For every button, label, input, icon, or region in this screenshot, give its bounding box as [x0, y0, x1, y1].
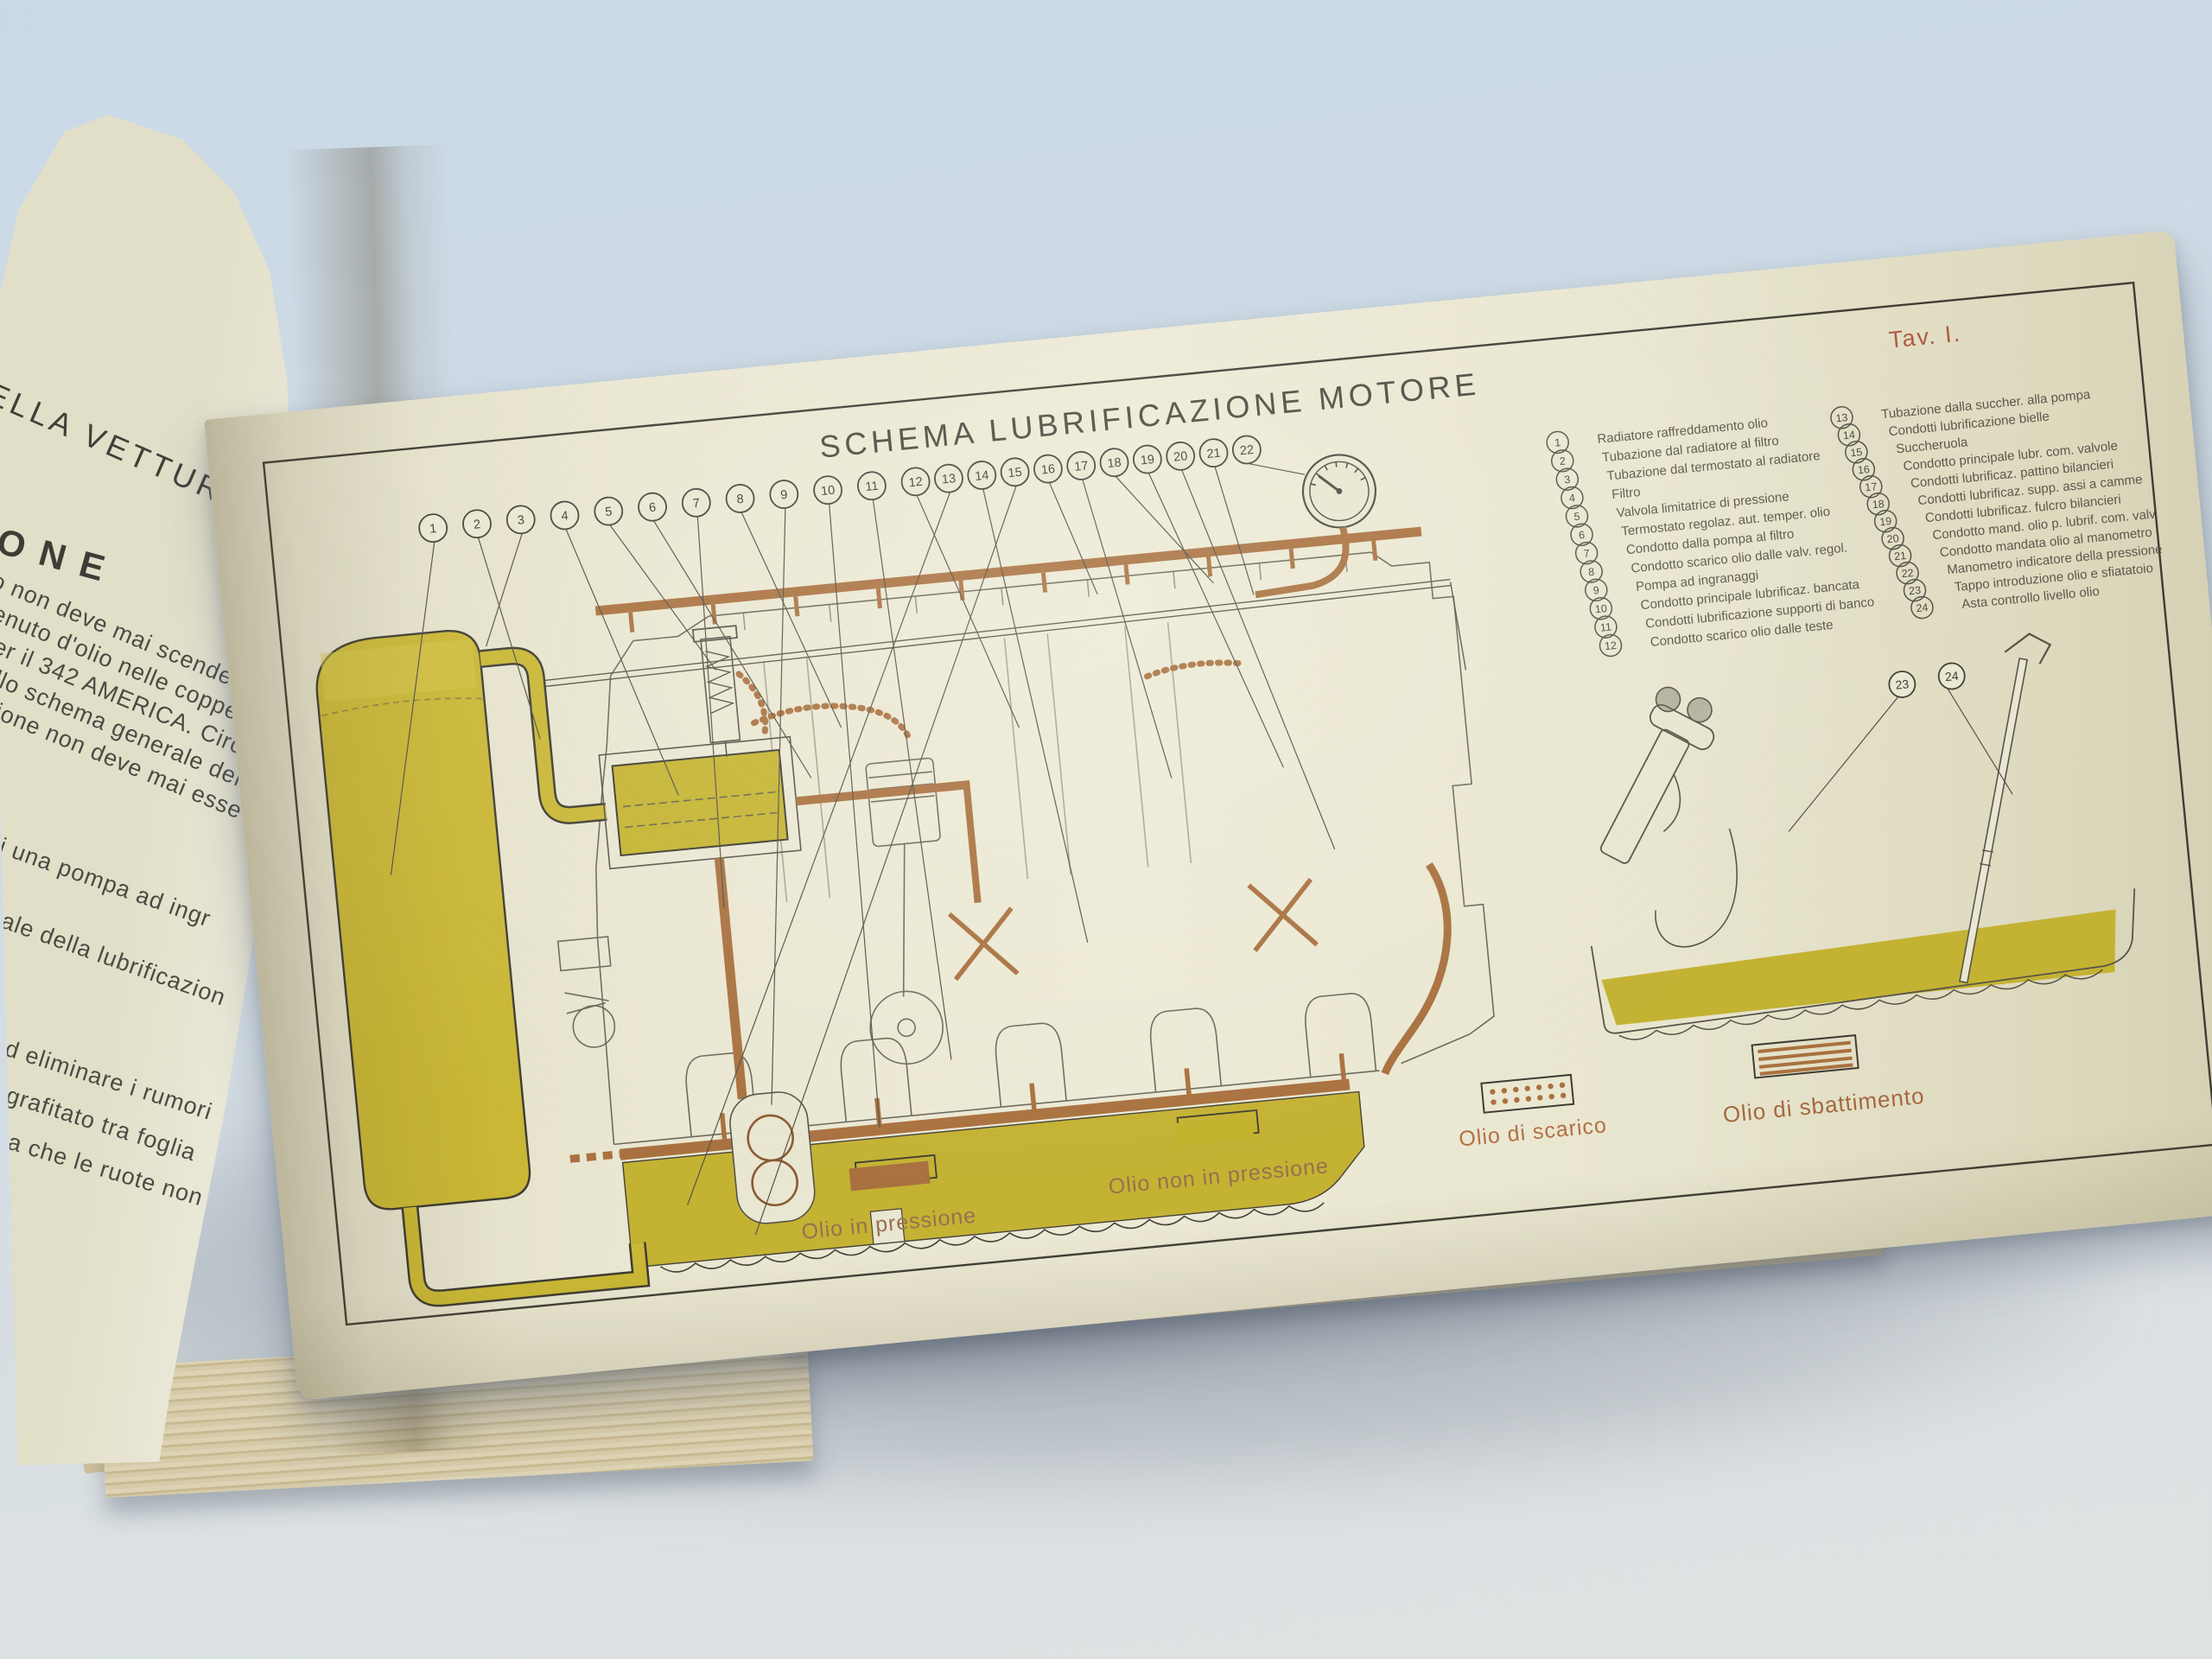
- legend-column-2: 13Tubazione dalla succher. alla pompa14C…: [1830, 378, 2167, 626]
- callout-number: 12: [908, 475, 924, 490]
- callout-number: 3: [517, 513, 525, 528]
- swatch-label: Olio di scarico: [1458, 1113, 1608, 1151]
- callout-number: 19: [1140, 453, 1155, 467]
- swatch-label: Olio di sbattimento: [1722, 1083, 1926, 1128]
- callout-circle: 5: [594, 496, 624, 526]
- legend-number: 14: [1842, 429, 1855, 442]
- legend-number: 4: [1568, 492, 1575, 505]
- callout-number: 8: [736, 493, 745, 507]
- callout-number: 5: [605, 505, 613, 519]
- legend-number: 7: [1583, 547, 1590, 560]
- legend-number: 1: [1554, 436, 1561, 449]
- callout-circle: 2: [462, 509, 493, 539]
- callout-number: 16: [1040, 462, 1056, 477]
- pressure-relief-valve: [693, 626, 748, 759]
- legend-number: 17: [1865, 480, 1878, 493]
- callout-circle: 10: [813, 475, 843, 505]
- callout-circle: 15: [1000, 457, 1030, 487]
- callout-number: 10: [820, 484, 836, 499]
- callout-circle: 4: [550, 500, 580, 531]
- tank-to-filter-pipe: [480, 648, 607, 822]
- legend-column-1: 1Radiatore raffreddamento olio2Tubazione…: [1546, 403, 1877, 660]
- legend-item-label: Filtro: [1611, 485, 1641, 502]
- callout-number: 20: [1173, 449, 1189, 464]
- callout-number: 4: [561, 509, 569, 524]
- callout-circle: 1: [418, 513, 448, 543]
- pressure-gauge: [1243, 452, 1384, 595]
- detail-callout-numbers: 2324: [1774, 658, 2014, 831]
- legend-number: 10: [1594, 602, 1607, 615]
- filler-and-dipstick-detail: [1565, 620, 2145, 1043]
- key-oil-drain: Olio di scarico: [1454, 1071, 1608, 1151]
- filler-tube: [1648, 829, 1744, 950]
- callout-number: 17: [1074, 459, 1090, 474]
- legend-number: 16: [1857, 463, 1870, 476]
- callout-number: 14: [975, 468, 990, 483]
- callout-number: 2: [473, 518, 481, 532]
- legend-number: 13: [1835, 411, 1848, 424]
- legend-number: 5: [1573, 511, 1580, 524]
- legend-number: 24: [1916, 601, 1929, 614]
- legend-number: 11: [1599, 621, 1611, 634]
- callout-number: 15: [1007, 466, 1023, 480]
- key-oil-splash: Olio di sbattimento: [1717, 1029, 1926, 1128]
- callout-number: 1: [429, 522, 438, 537]
- callout-number: 6: [648, 501, 657, 516]
- plate-number: Tav. I.: [1888, 321, 1963, 353]
- callout-number: 21: [1206, 447, 1222, 461]
- callout-circle: 14: [967, 461, 997, 491]
- legend-number: 2: [1559, 455, 1566, 468]
- callout-circle: 12: [900, 467, 931, 497]
- callout-circle: 9: [769, 480, 799, 510]
- oil-tank: [312, 628, 531, 1211]
- callout-number: 9: [780, 488, 789, 503]
- legend-number: 6: [1578, 529, 1585, 542]
- callout-number: 7: [692, 497, 701, 512]
- callout-circle: 13: [933, 463, 963, 493]
- callout-circle: 8: [725, 483, 755, 513]
- oil-filter: [599, 737, 801, 869]
- right-page-plate: SCHEMA LUBRIFICAZIONE MOTORE Tav. I.: [204, 231, 2212, 1401]
- lubrication-diagram: SCHEMA LUBRIFICAZIONE MOTORE Tav. I.: [204, 231, 2212, 1401]
- callout-circle: 11: [856, 471, 887, 501]
- callout-number: 22: [1239, 443, 1255, 458]
- callout-circle: 3: [505, 505, 536, 535]
- left-page-paragraphs: o non deve mai scendeenuto d'olio nelle …: [0, 107, 398, 118]
- legend-number: 21: [1894, 550, 1907, 563]
- callout-circle: 18: [1099, 448, 1129, 478]
- legend-number: 19: [1879, 515, 1892, 528]
- oil-filler-cap: [1580, 678, 1730, 874]
- legend-number: 18: [1872, 498, 1885, 511]
- callout-number: 13: [941, 472, 957, 486]
- callout-number: 23: [1895, 677, 1910, 691]
- swatch-dotted: [1490, 1082, 1567, 1105]
- callout-circle: 6: [638, 492, 668, 522]
- callout-circle: 17: [1066, 450, 1096, 480]
- legend-number: 15: [1850, 446, 1863, 459]
- legend-number: 8: [1588, 566, 1595, 579]
- legend-number: 22: [1901, 567, 1914, 580]
- photo-of-open-manual: { "scene": { "description_background": "…: [0, 0, 2212, 1659]
- legend-number: 23: [1908, 584, 1921, 597]
- legend-number: 3: [1564, 474, 1571, 486]
- callout-circle: 21: [1198, 438, 1229, 468]
- legend-number: 20: [1886, 532, 1899, 545]
- callout-circle: 19: [1132, 444, 1162, 474]
- callout-number: 18: [1107, 456, 1122, 471]
- callout-circle: 16: [1033, 454, 1063, 484]
- gear-pump: [728, 1090, 817, 1226]
- callout-number: 24: [1944, 669, 1959, 683]
- callout-circle: 20: [1166, 441, 1196, 471]
- legend-number: 12: [1604, 639, 1617, 652]
- callout-circle: 7: [681, 487, 711, 518]
- callout-circle: 22: [1231, 435, 1262, 465]
- legend-number: 9: [1592, 584, 1599, 597]
- callout-number: 11: [865, 480, 880, 494]
